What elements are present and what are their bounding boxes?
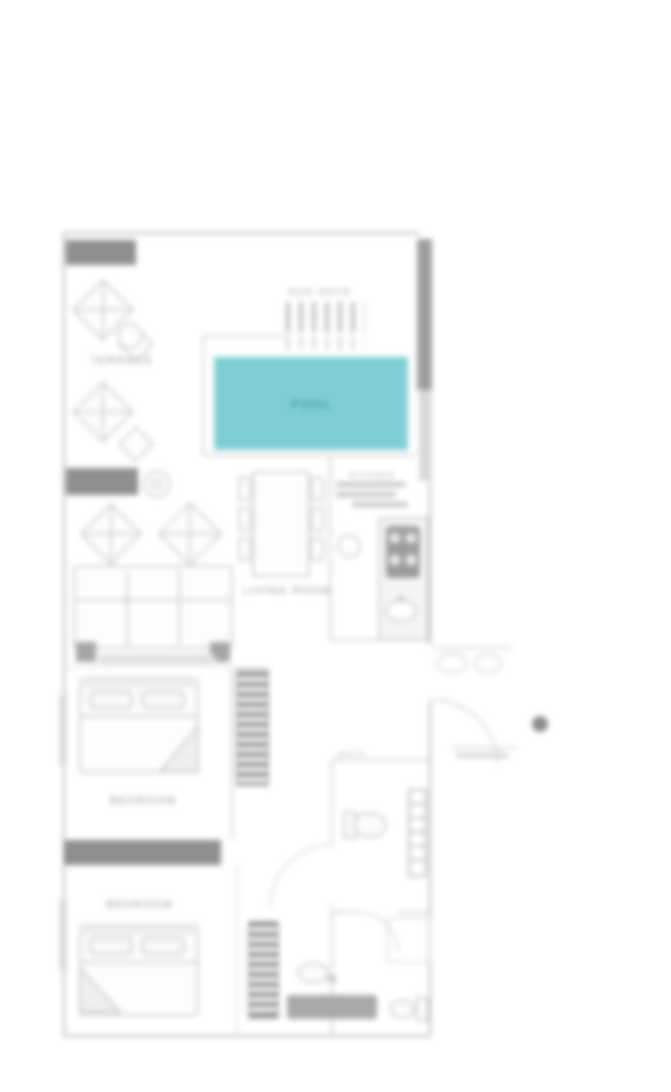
toilet-2-bowl	[390, 1000, 414, 1018]
stool	[338, 535, 360, 557]
step-stone-1	[437, 654, 467, 672]
armchair-1	[81, 504, 140, 563]
pool-label: POOL	[291, 397, 333, 412]
floor-plan-page: TERRACE SUN DECK POOL	[0, 0, 671, 1092]
terrace-side-table	[118, 324, 142, 348]
staircase	[237, 669, 268, 785]
sofa-side-table-left	[76, 642, 96, 662]
wall-segment-bottom-left	[64, 840, 221, 865]
rug	[98, 654, 216, 664]
floor-plan: TERRACE SUN DECK POOL	[0, 0, 671, 1092]
lounge-chair-2	[73, 382, 132, 441]
step-stone-2	[475, 654, 501, 672]
shower	[388, 918, 430, 962]
kitchen-label: KITCHEN	[349, 471, 395, 480]
stove	[386, 526, 420, 578]
bathroom-label: BATH	[339, 750, 366, 759]
entry-note-line	[456, 753, 508, 758]
sun-deck-label: SUN DECK	[288, 287, 352, 298]
bed-2	[80, 925, 198, 1015]
wall-segment-mid-left	[66, 468, 138, 495]
bath-faucet	[328, 975, 336, 983]
wall-segment-top-left	[66, 240, 136, 265]
entrance	[433, 648, 548, 764]
sun-deck-steps	[277, 302, 365, 350]
kitchen	[379, 518, 428, 640]
kitchen-faucet	[398, 596, 404, 602]
bedroom-2-door-arc	[270, 845, 332, 907]
vanity	[287, 995, 377, 1019]
bedroom-2	[80, 845, 332, 1015]
living-room	[74, 471, 360, 664]
bedroom-1-label: BEDROOM	[109, 795, 176, 807]
living-room-label: LIVING ROOM	[243, 585, 333, 597]
entry-column	[532, 716, 548, 732]
sofa	[74, 566, 232, 662]
kitchen-sink	[386, 601, 416, 621]
window-left-1	[60, 695, 66, 765]
wall-segment-right-thick	[417, 239, 432, 390]
bathroom	[287, 790, 430, 1020]
lounge-chair-2-footrest	[119, 427, 153, 461]
bedroom-1	[80, 678, 198, 772]
toilet-2-tank	[416, 998, 428, 1020]
armchair-2	[159, 503, 221, 565]
wardrobe	[249, 922, 278, 1018]
bath-sink	[298, 963, 328, 983]
dining-table	[239, 472, 323, 576]
window-left-2	[60, 900, 66, 970]
wall-segment-right-light	[419, 390, 432, 481]
kitchen-note-lines	[336, 482, 408, 507]
toilet-1-bowl	[354, 813, 386, 837]
bed-1	[80, 678, 198, 772]
towel-ladder	[409, 790, 426, 876]
bedroom-2-label: BEDROOM	[106, 899, 173, 911]
terrace-label: TERRACE	[90, 355, 153, 367]
terrace	[73, 280, 153, 461]
plant-inner	[152, 479, 162, 489]
